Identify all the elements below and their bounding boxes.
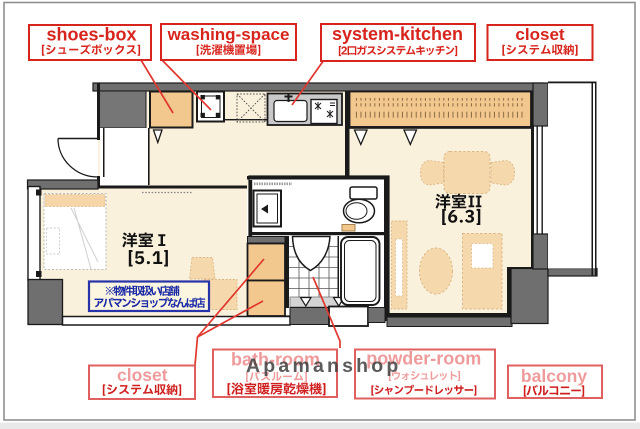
svg-text:Apamanshop: Apamanshop	[246, 355, 402, 377]
svg-text:shoes-box: shoes-box	[46, 25, 136, 45]
svg-text:washing-space: washing-space	[167, 25, 290, 44]
svg-text:closet: closet	[515, 25, 564, 44]
svg-text:closet: closet	[117, 365, 168, 385]
svg-text:system-kitchen: system-kitchen	[332, 24, 463, 44]
svg-text:balcony: balcony	[521, 366, 587, 386]
